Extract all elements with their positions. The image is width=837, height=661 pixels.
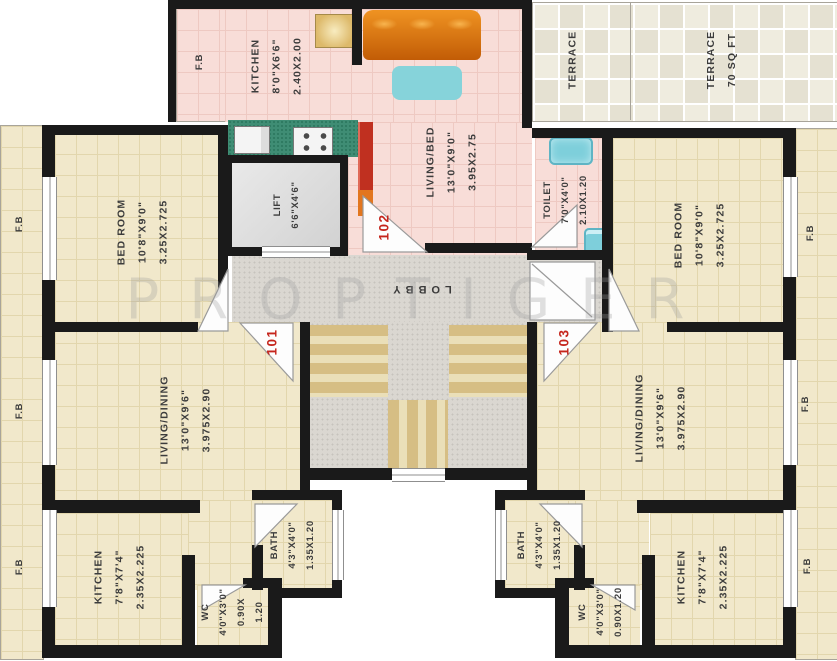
label-fb-right-1: F.B: [802, 225, 820, 241]
label-terrace-right: TERRACE 70 SQ FT: [701, 31, 743, 89]
label-bedroom-right: BED ROOM 10'8"X9'0" 3.25X2.725: [669, 202, 732, 269]
label-fb-right-2: F.B: [797, 396, 815, 412]
label-bedroom-left: BED ROOM 10'8"X9'0" 3.25X2.725: [112, 199, 175, 266]
label-living-dining-left: LIVING/DINING 13'0"X9'6" 3.975X2.90: [155, 376, 218, 465]
label-fb-102: F.B: [191, 54, 209, 70]
label-unit-102: 102: [371, 213, 398, 240]
label-fb-left-3: F.B: [11, 559, 29, 575]
label-lift: LIFT 6'6"X4'6": [269, 181, 305, 228]
label-fb-left-2: F.B: [11, 403, 29, 419]
label-unit-101: 101: [259, 328, 286, 355]
label-kitchen-right: KITCHEN 7'8"X7'4" 2.35X2.225: [672, 545, 735, 610]
label-terrace-left: TERRACE: [563, 31, 584, 89]
label-living-bed: LIVING/BED 13'0"X9'0" 3.95X2.75: [421, 126, 484, 197]
label-unit-103: 103: [551, 328, 578, 355]
label-wc-left: WC 4'0"X3'0" 0.90X 1.20: [197, 588, 269, 635]
floor-plan: F.B KITCHEN 8'0"X6'6" 2.40X2.00 LIVING/B…: [0, 0, 837, 661]
door-bedroom-left: [198, 269, 228, 331]
label-kitchen-left: KITCHEN 7'8"X7'4" 2.35X2.225: [89, 545, 152, 610]
label-fb-left-1: F.B: [11, 216, 29, 232]
label-living-dining-right: LIVING/DINING 13'0"X9'6" 3.975X2.90: [630, 374, 693, 463]
label-kitchen-102: KITCHEN 8'0"X6'6" 2.40X2.00: [246, 37, 309, 95]
label-fb-right-3: F.B: [799, 558, 817, 574]
label-lobby: LOBBY: [388, 278, 452, 300]
label-toilet: TOILET 7'0"X4'0" 2.10X1.20: [539, 175, 593, 225]
door-bedroom-right: [609, 269, 639, 331]
label-wc-right: WC 4'0"X3'0" 0.90X1.20: [574, 587, 628, 637]
label-bath-left: BATH 4'3"X4'0" 1.35X1.20: [266, 520, 320, 570]
label-bath-right: BATH 4'3"X4'0" 1.35X1.20: [513, 520, 567, 570]
